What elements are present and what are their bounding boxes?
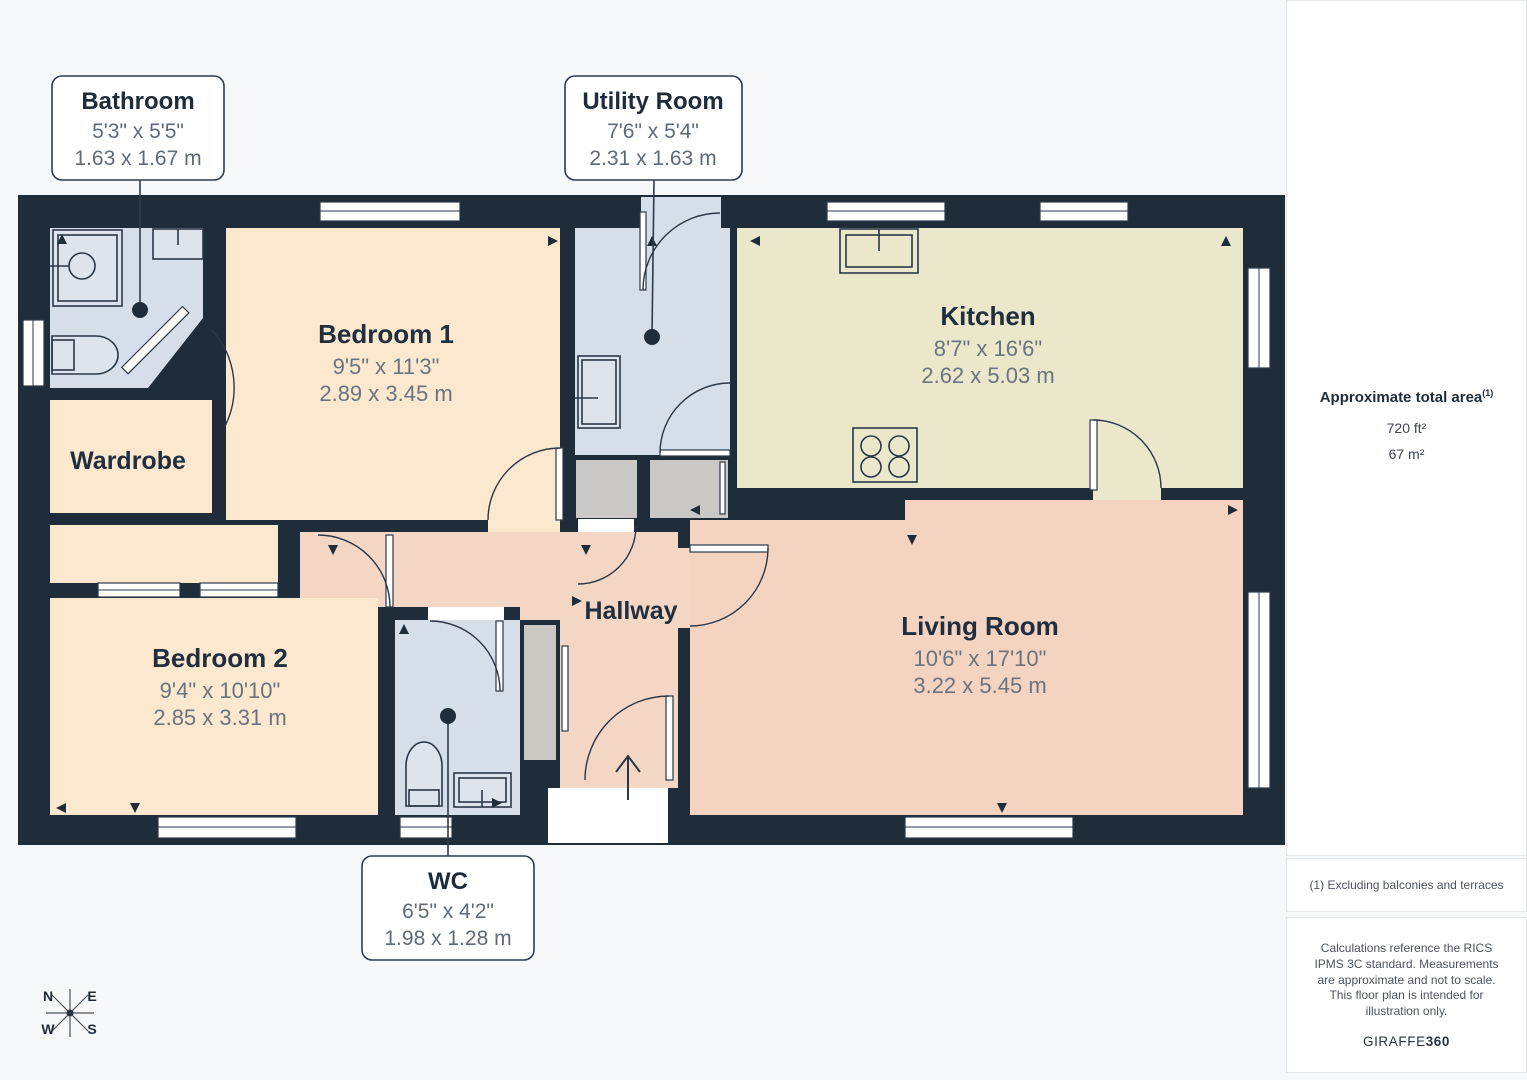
closet-a-floor [576, 460, 637, 518]
closet-a-door-opening [578, 519, 634, 532]
closet-c-floor [524, 625, 556, 760]
floor-plan: Bedroom 1 9'5" x 11'3" 2.89 x 3.45 m Kit… [0, 0, 1286, 1080]
svg-text:7'6" x 5'4": 7'6" x 5'4" [607, 120, 699, 143]
info-sidebar: Approximate total area(1) 720 ft² 67 m² … [1286, 0, 1527, 1080]
compass-w: W [41, 1021, 55, 1037]
svg-text:2.89 x 3.45 m: 2.89 x 3.45 m [319, 381, 452, 406]
svg-text:5'3" x 5'5": 5'3" x 5'5" [92, 120, 184, 143]
bedroom1-label: Bedroom 1 9'5" x 11'3" 2.89 x 3.45 m [318, 319, 454, 406]
svg-text:Utility Room: Utility Room [582, 88, 723, 115]
svg-text:9'5" x 11'3": 9'5" x 11'3" [333, 354, 440, 379]
footnote-card: (1) Excluding balconies and terraces [1286, 858, 1527, 912]
svg-text:2.85 x 3.31 m: 2.85 x 3.31 m [153, 705, 286, 730]
window-bathroom-left [23, 320, 44, 386]
window-living-right [1248, 592, 1270, 788]
svg-text:2.31 x 1.63 m: 2.31 x 1.63 m [589, 147, 716, 170]
kitchen-door-opening [1093, 488, 1161, 500]
total-area-title: Approximate total area(1) [1320, 388, 1494, 406]
front-door-opening [548, 788, 668, 843]
total-area-card: Approximate total area(1) 720 ft² 67 m² [1286, 0, 1527, 856]
wc-toilet-icon [406, 742, 442, 806]
closet-c-door [562, 646, 568, 731]
bathroom-toilet-icon [52, 336, 118, 374]
disclaimer-card: Calculations reference the RICS IPMS 3C … [1286, 917, 1527, 1073]
hallway-label: Hallway [584, 597, 677, 625]
brand-regular: GIRAFFE [1363, 1034, 1426, 1049]
svg-text:3.22 x 5.45 m: 3.22 x 5.45 m [913, 673, 1046, 698]
closet-b-door [720, 462, 725, 514]
svg-text:6'5" x 4'2": 6'5" x 4'2" [402, 900, 494, 923]
bathroom-sink-icon [153, 229, 203, 259]
svg-text:Bedroom 1: Bedroom 1 [318, 319, 454, 349]
total-area-title-text: Approximate total area [1320, 389, 1483, 406]
wc-door-opening [428, 607, 504, 620]
svg-text:8'7" x 16'6": 8'7" x 16'6" [934, 336, 1042, 361]
window-kitchen-right [1248, 268, 1270, 368]
svg-text:1.98 x 1.28 m: 1.98 x 1.28 m [384, 927, 511, 950]
svg-text:Bedroom 2: Bedroom 2 [152, 643, 288, 673]
svg-text:9'4" x 10'10": 9'4" x 10'10" [160, 678, 281, 703]
window-living-bottom [905, 817, 1073, 838]
total-area-ft: 720 ft² [1387, 416, 1427, 442]
kitchen-sink-icon [840, 229, 918, 273]
room-bedroom2-strip-floor [50, 525, 278, 583]
closet-b-floor [650, 460, 728, 518]
compass-n: N [43, 988, 53, 1004]
window-kitchen-top-2 [1040, 202, 1128, 221]
svg-text:Living Room: Living Room [901, 611, 1058, 641]
svg-text:Bathroom: Bathroom [81, 88, 194, 115]
washer-icon [575, 356, 620, 428]
compass-s: S [87, 1021, 96, 1037]
svg-text:10'6" x 17'10": 10'6" x 17'10" [914, 646, 1047, 671]
total-area-superscript: (1) [1482, 388, 1493, 398]
svg-text:WC: WC [428, 868, 468, 895]
wardrobe-label: Wardrobe [70, 447, 186, 475]
window-bedroom2-bottom [158, 817, 296, 838]
hall-living-door-opening [678, 548, 690, 628]
window-bedroom1-top [320, 202, 460, 221]
compass-e: E [87, 988, 96, 1004]
hob-icon [853, 428, 917, 482]
total-area-m: 67 m² [1389, 442, 1425, 468]
svg-text:2.62 x 5.03 m: 2.62 x 5.03 m [921, 363, 1054, 388]
svg-text:1.63 x 1.67 m: 1.63 x 1.67 m [74, 147, 201, 170]
bedroom2-label: Bedroom 2 9'4" x 10'10" 2.85 x 3.31 m [152, 643, 288, 730]
disclaimer-text: Calculations reference the RICS IPMS 3C … [1309, 941, 1504, 1020]
brand-bold: 360 [1426, 1034, 1450, 1049]
window-kitchen-top-1 [827, 202, 945, 221]
living-room-label: Living Room 10'6" x 17'10" 3.22 x 5.45 m [901, 611, 1058, 698]
svg-text:Kitchen: Kitchen [940, 301, 1035, 331]
wc-sink-icon [454, 773, 511, 807]
window-wc-bottom [400, 817, 452, 838]
bedroom1-door-opening [488, 520, 560, 532]
kitchen-label: Kitchen 8'7" x 16'6" 2.62 x 5.03 m [921, 301, 1054, 388]
giraffe360-logo: GIRAFFE360 [1363, 1034, 1450, 1049]
footnote-text: (1) Excluding balconies and terraces [1309, 878, 1503, 892]
